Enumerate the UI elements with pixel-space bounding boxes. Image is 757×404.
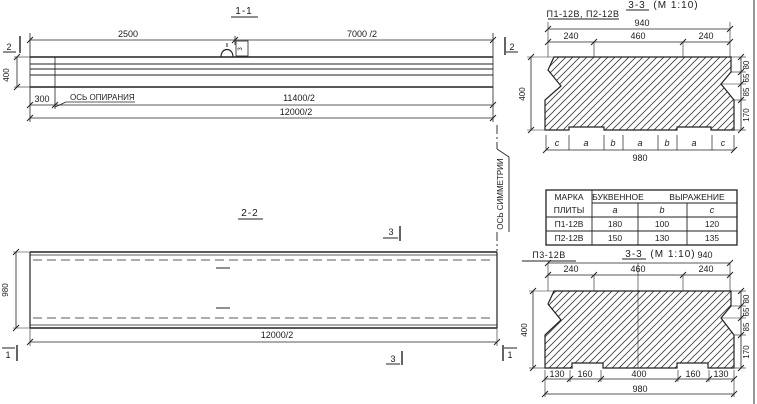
dim-160-right: 160	[685, 369, 700, 379]
letter-a-1: a	[583, 138, 588, 148]
letter-a-2: a	[637, 138, 642, 148]
section-1-1-title: 1-1	[235, 6, 252, 17]
dim-400-left-top-section: 400	[518, 87, 527, 101]
dim-980-bottom-section: 980	[632, 384, 647, 394]
dim-400-bottom-middle: 400	[631, 369, 646, 379]
table-col-c: c	[710, 205, 715, 215]
section-1-1	[3, 17, 518, 122]
table-header-vyrazhenie: ВЫРАЖЕНИЕ	[669, 192, 725, 202]
dim-940-top: 940	[634, 18, 649, 28]
dim-11400-half: 11400/2	[283, 93, 315, 103]
section-3-3-top-scale: (М 1:10)	[653, 0, 698, 11]
table-row1-c: 120	[705, 219, 719, 229]
dim-980-vertical: 980	[1, 283, 10, 297]
table-row1-mark: П1-12В	[555, 219, 584, 229]
loop-tag-number: 3	[238, 47, 244, 51]
section-2-2-labels: 2-2 3 3 1 1 980 12000/2	[1, 208, 513, 364]
letter-b-1: b	[610, 138, 615, 148]
section-3-3-bottom-scale: (М 1:10)	[650, 249, 695, 260]
table-header-plity: ПЛИТЫ	[554, 205, 585, 215]
dim-170-right: 170	[742, 108, 751, 122]
dim-170-right-bottom: 170	[742, 345, 751, 359]
letter-a-3: a	[691, 138, 696, 148]
cut-label-3-top: 3	[388, 227, 393, 237]
table-row2-mark: П2-12В	[555, 233, 584, 243]
dim-240-left-bottom: 240	[563, 264, 578, 274]
mark-p3-label: П3-12В	[532, 250, 566, 260]
table-row1-a: 180	[608, 219, 622, 229]
dim-80-right: 80	[742, 60, 751, 69]
dim-7000-half: 7000 /2	[347, 29, 377, 39]
dim-460-top: 460	[630, 31, 645, 41]
letter-c-1: c	[555, 138, 560, 148]
dim-12000-half-bottom: 12000/2	[261, 330, 294, 340]
lifting-loop	[221, 50, 233, 58]
dim-130-right: 130	[713, 369, 728, 379]
section-1-1-labels: 1-1 2500 7000 /2 2 2 400 300 ОСЬ ОПИРАНИ…	[2, 6, 515, 117]
symmetry-axis-label: ОСЬ СИММЕТРИИ	[496, 158, 505, 230]
dim-240-right-top: 240	[698, 31, 713, 41]
dim-65-right: 65	[742, 73, 751, 82]
table-row2-a: 150	[608, 233, 622, 243]
table-row2-b: 130	[655, 233, 669, 243]
dim-940-bottom: 940	[697, 250, 712, 260]
engineering-drawing-sheet: 1-1 2500 7000 /2 2 2 400 300 ОСЬ ОПИРАНИ…	[0, 0, 757, 404]
cut-label-1-left: 1	[5, 350, 10, 360]
table-row2-c: 135	[705, 233, 719, 243]
section-2-2-title: 2-2	[241, 208, 258, 219]
cut-label-2-left: 2	[6, 42, 11, 52]
table-header-bukvennoe: БУКВЕННОЕ	[592, 192, 644, 202]
section-3-3-top-title: 3-3	[628, 0, 645, 11]
dim-240-right-bottom: 240	[698, 264, 713, 274]
dim-2500: 2500	[118, 29, 138, 39]
cut-label-3-bottom: 3	[390, 354, 395, 364]
letter-c-2: c	[721, 138, 726, 148]
dim-85-right-bottom: 85	[742, 322, 751, 331]
letter-values-table-text: МАРКА ПЛИТЫ БУКВЕННОЕ ВЫРАЖЕНИЕ a b c П1…	[554, 192, 725, 243]
dim-240-left-top: 240	[563, 31, 578, 41]
dim-160-left: 160	[577, 369, 592, 379]
table-col-b: b	[659, 205, 664, 215]
cut-label-2-right: 2	[509, 42, 514, 52]
letter-b-2: b	[664, 138, 669, 148]
dim-12000-half-top: 12000/2	[280, 107, 313, 117]
marks-p1-p2-label: П1-12В, П2-12В	[547, 9, 620, 19]
cut-label-1-right: 1	[507, 350, 512, 360]
dim-400-left-bottom-section: 400	[520, 323, 529, 337]
support-axis-label: ОСЬ ОПИРАНИЯ	[70, 93, 135, 102]
table-col-a: a	[612, 205, 617, 215]
dim-80-right-bottom: 80	[742, 294, 751, 303]
dim-300: 300	[34, 94, 49, 104]
table-row1-b: 100	[655, 219, 669, 229]
drawing-canvas: 1-1 2500 7000 /2 2 2 400 300 ОСЬ ОПИРАНИ…	[0, 0, 757, 404]
dim-85-right: 85	[742, 87, 751, 96]
dim-400-vertical: 400	[2, 68, 11, 82]
dim-130-left: 130	[549, 369, 564, 379]
dim-65-right-bottom: 65	[742, 307, 751, 316]
section-3-3-bottom-title: 3-3	[625, 249, 642, 260]
slab-cross-section-p3	[545, 291, 734, 368]
dim-460-bottom: 460	[630, 264, 645, 274]
table-header-marka: МАРКА	[554, 192, 583, 202]
dim-980-top-section: 980	[632, 153, 647, 163]
slab-cross-section-p1-p2	[545, 57, 734, 130]
section-2-2	[2, 219, 517, 365]
